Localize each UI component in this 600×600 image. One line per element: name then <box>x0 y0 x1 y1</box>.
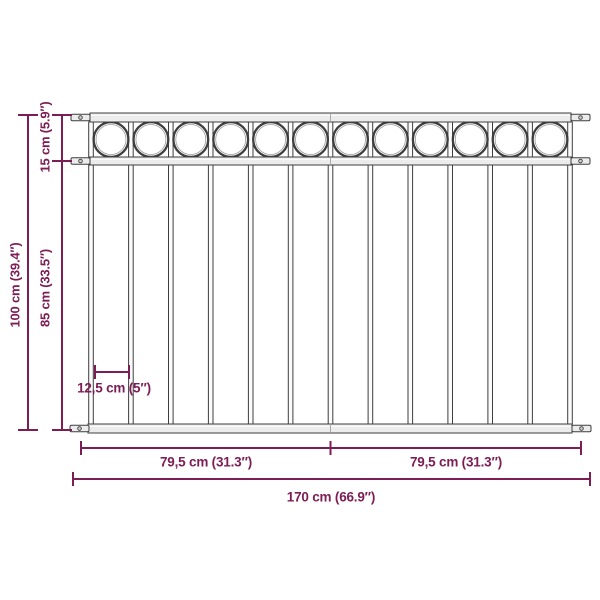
dim-left-half-width-label: 79,5 cm (31.3″) <box>160 455 252 470</box>
dim-bar-spacing-label: 12,5 cm (5″) <box>77 381 151 396</box>
dim-total-height-label: 100 cm (39.4″) <box>8 242 23 327</box>
diagram-canvas: 100 cm (39.4″) 15 cm (5.9″) 85 cm (33.5″… <box>0 0 600 600</box>
vertical-bars <box>89 122 573 424</box>
dim-right-half-width-label: 79,5 cm (31.3″) <box>410 455 502 470</box>
dim-total-width-label: 170 cm (66.9″) <box>287 490 375 505</box>
dim-lower-section-height-label: 85 cm (33.5″) <box>38 249 53 327</box>
dim-top-section-height-label: 15 cm (5.9″) <box>38 101 53 172</box>
fence-panel-drawing <box>0 0 600 600</box>
